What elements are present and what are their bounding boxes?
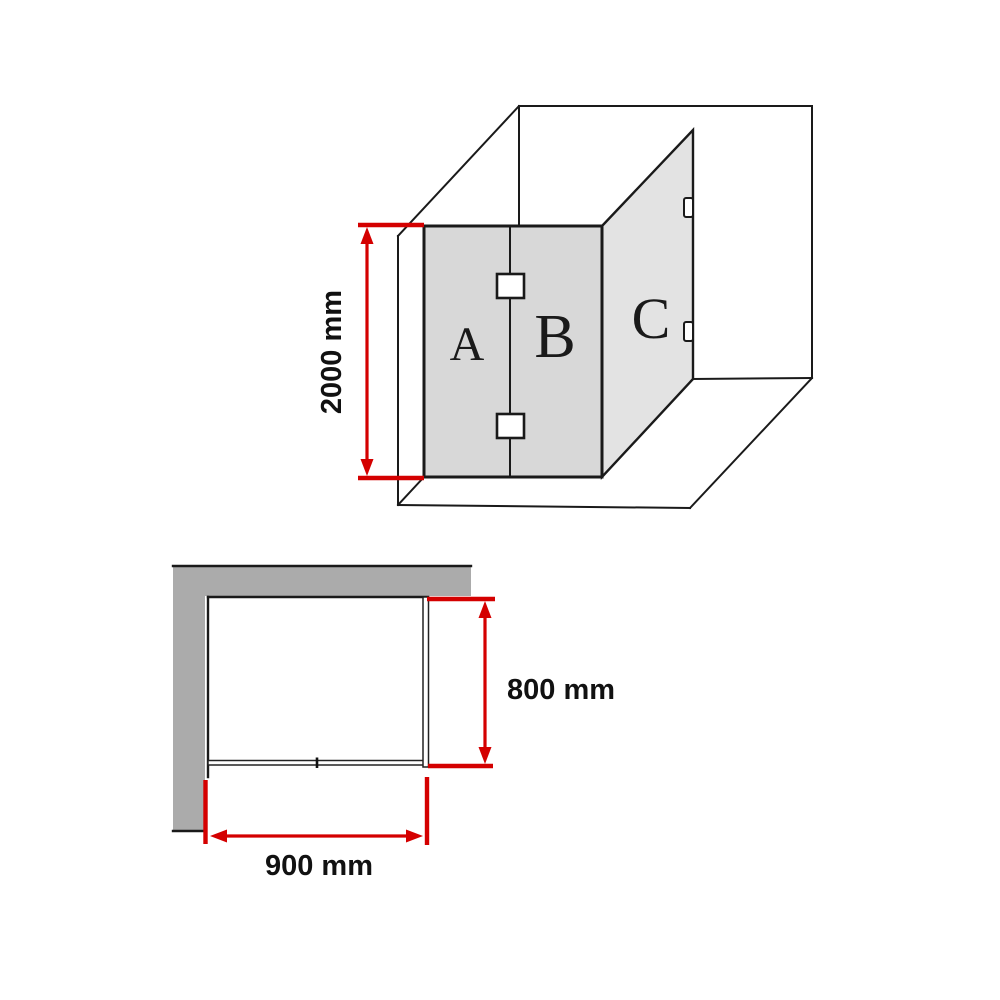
depth-dimension: 800 mm [427,599,615,766]
wall-bracket-upper [684,198,693,217]
glass-return-plan [423,597,429,767]
room-floor-front-edge [398,505,690,508]
plan-view: 800 mm 900 mm [173,566,615,882]
diagram-canvas: A B C 2000 mm [0,0,1000,1000]
width-dimension: 900 mm [206,777,428,882]
height-dim-arrow-up [361,227,374,244]
shower-screen-diagram: A B C 2000 mm [0,0,1000,1000]
room-left-wall-top-edge [398,106,519,236]
height-dimension: 2000 mm [316,225,424,478]
wall-left [173,566,205,831]
room-floor-left-corner-edge [398,477,424,505]
room-floor-right-edge [690,378,812,508]
height-dim-arrow-down [361,459,374,476]
width-dim-label: 900 mm [265,850,373,882]
hinge-lower [497,414,524,438]
hinge-upper [497,274,524,298]
depth-dim-label: 800 mm [507,674,615,706]
room-right-wall-bottom-edge [692,378,812,379]
panel-b-label: B [534,303,575,371]
wall-bracket-lower [684,322,693,341]
depth-dim-arrow-down [479,747,492,764]
isometric-view: A B C 2000 mm [316,106,812,508]
depth-dim-arrow-up [479,601,492,618]
panel-c-label: C [632,286,671,351]
panel-a-label: A [450,318,485,371]
wall-top [173,566,471,596]
width-dim-arrow-right [406,830,423,843]
width-dim-arrow-left [210,830,227,843]
height-dim-label: 2000 mm [316,290,348,414]
